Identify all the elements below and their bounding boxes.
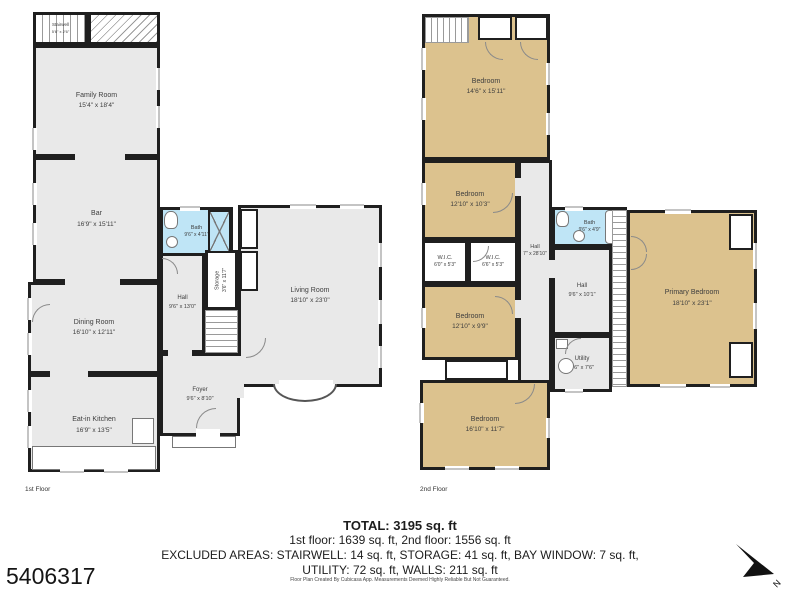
room-label: Primary Bedroom: [665, 288, 719, 299]
closet: [445, 360, 508, 380]
room-dims: 9'6" x 4'11": [184, 232, 208, 240]
first-floor-plan: Stairwell5'6" x 2'6" Family Room15'4" x …: [20, 8, 405, 486]
door-opening: [75, 154, 125, 163]
door-opening: [548, 260, 557, 278]
window-marker: [104, 469, 128, 476]
room-label: Stairwell: [52, 22, 69, 29]
first-floor-label: 1st Floor: [25, 486, 50, 493]
toilet: [556, 211, 569, 227]
window-marker: [419, 48, 426, 70]
room-storage: Storage3'6" x 11'7": [205, 250, 238, 310]
room-wic-left: W.I.C.6'0" x 5'3": [422, 240, 468, 284]
second-floor-plan: Bedroom14'6" x 15'11" Bedroom12'10" x 10…: [415, 8, 795, 486]
excluded-areas-text-line1: EXCLUDED AREAS: STAIRWELL: 14 sq. ft, ST…: [0, 548, 800, 563]
window-marker: [565, 389, 583, 396]
window-marker: [565, 204, 583, 211]
total-area-text: TOTAL: 3195 sq. ft: [0, 518, 800, 533]
room-label: Eat-in Kitchen: [72, 415, 116, 426]
room-label: Bar: [91, 209, 102, 220]
room-label: Family Room: [76, 91, 117, 102]
bay-window: [273, 384, 337, 402]
window-marker: [30, 223, 37, 245]
excluded-areas-text-line2: UTILITY: 72 sq. ft, WALLS: 211 sq. ft: [0, 563, 800, 578]
kitchen-counter: [32, 446, 156, 470]
door-opening: [65, 279, 120, 288]
room-dining-room: Dining Room16'10" x 12'11": [28, 282, 160, 374]
room-label: Bedroom: [471, 415, 499, 426]
window-marker: [180, 204, 200, 211]
room-bedroom-third: Bedroom12'10" x 9'9": [422, 284, 518, 360]
sink: [573, 230, 585, 242]
water-heater: [558, 358, 574, 374]
door-opening: [235, 356, 244, 398]
room-dims: 16'9" x 13'5": [76, 426, 112, 436]
toilet: [164, 211, 178, 229]
room-label: Utility: [575, 355, 590, 364]
room-dims: 12'10" x 10'3": [450, 200, 489, 210]
stairs: [205, 310, 238, 353]
compass-letter: N: [771, 578, 783, 590]
window-marker: [660, 384, 686, 391]
window-marker: [546, 63, 553, 85]
room-dims: 9'6" x 13'0": [169, 303, 196, 311]
room-stairwell: Stairwell5'6" x 2'6": [33, 12, 88, 45]
window-marker: [419, 98, 426, 120]
room-label: Hall: [577, 282, 587, 291]
window-marker: [378, 243, 385, 267]
room-hall-second-floor: Hall9'6" x 10'1": [552, 247, 612, 335]
window-marker: [419, 308, 426, 328]
window-marker: [665, 207, 691, 214]
room-label: Bedroom: [456, 190, 484, 201]
stairs: [612, 210, 627, 387]
window-marker: [340, 202, 364, 209]
room-label: Bath: [191, 224, 202, 232]
window-marker: [30, 128, 37, 150]
compass-arrow: [736, 544, 774, 577]
stairs: [425, 17, 469, 43]
closet: [240, 251, 258, 291]
room-dims: 6'0" x 5'3": [434, 262, 456, 270]
closet: [729, 342, 753, 378]
room-label: Hall: [530, 243, 539, 251]
entry-step: [172, 436, 236, 448]
compass-north-icon: N: [730, 540, 786, 592]
closet: [515, 16, 548, 40]
window-marker: [378, 346, 385, 368]
closet: [729, 214, 753, 250]
room-label: Living Room: [291, 286, 330, 297]
door-opening: [50, 371, 88, 379]
door-opening: [168, 350, 192, 358]
plan-number: 5406317: [6, 563, 96, 590]
second-floor-label: 2nd Floor: [420, 486, 447, 493]
window-marker: [25, 298, 32, 320]
disclaimer-text: Floor Plan Created By Cubicasa App. Meas…: [0, 577, 800, 583]
window-marker: [419, 183, 426, 205]
room-living-room: Living Room18'10" x 23'0": [238, 205, 382, 387]
window-marker: [290, 202, 316, 209]
window-marker: [445, 466, 469, 473]
room-dims: 7" x 28'10": [523, 251, 547, 259]
room-dims: 18'10" x 23'0": [290, 296, 329, 306]
room-label: W.I.C.: [438, 254, 453, 262]
window-marker: [60, 469, 84, 476]
window-marker: [546, 113, 553, 135]
room-label: Foyer: [192, 386, 207, 395]
room-label: Bath: [584, 219, 595, 227]
window-marker: [156, 106, 163, 128]
window-marker: [710, 384, 730, 391]
window-marker: [753, 243, 760, 269]
room-dims: 6'6" x 5'3": [482, 262, 504, 270]
room-label: Storage: [214, 270, 222, 289]
room-label: Hall: [177, 294, 187, 303]
door-opening: [196, 429, 220, 437]
door-opening: [515, 300, 524, 318]
window-marker: [25, 390, 32, 412]
excluded-area-hatch: [88, 12, 160, 45]
room-family-room: Family Room15'4" x 18'4": [33, 45, 160, 157]
room-dims: 15'4" x 18'4": [79, 101, 115, 111]
door-opening: [515, 178, 524, 196]
area-summary: TOTAL: 3195 sq. ft 1st floor: 1639 sq. f…: [0, 518, 800, 578]
room-bar: Bar16'9" x 15'11": [33, 157, 160, 282]
window-marker: [30, 183, 37, 205]
room-dims: 16'9" x 15'11": [77, 220, 116, 230]
closet: [478, 16, 512, 40]
window-marker: [546, 418, 553, 438]
room-dims: 14'6" x 15'11": [467, 87, 506, 97]
room-label: Bedroom: [472, 77, 500, 88]
room-dims: 9'6" x 10'1": [568, 291, 595, 299]
window-marker: [378, 300, 385, 324]
room-dims: 12'10" x 9'9": [452, 322, 488, 332]
room-dims: 16'10" x 12'11": [73, 328, 115, 338]
room-label: W.I.C.: [486, 254, 501, 262]
window-marker: [25, 426, 32, 448]
room-dims: 3'6" x 11'7": [222, 268, 230, 292]
room-dims: 5'6" x 2'6": [52, 29, 70, 35]
shower: [208, 210, 231, 253]
window-marker: [753, 303, 760, 329]
sink: [166, 236, 178, 248]
room-dims: 16'10" x 11'7": [466, 425, 505, 435]
room-label: Bedroom: [456, 312, 484, 323]
room-dims: 9'6" x 8'10": [186, 395, 213, 403]
window-marker: [495, 466, 519, 473]
window-marker: [156, 68, 163, 90]
floor-areas-text: 1st floor: 1639 sq. ft, 2nd floor: 1556 …: [0, 533, 800, 548]
room-label: Dining Room: [74, 318, 114, 329]
room-dims: 18'10" x 23'1": [672, 299, 711, 309]
window-marker: [417, 403, 424, 423]
closet: [240, 209, 258, 249]
stove: [132, 418, 154, 444]
window-marker: [25, 333, 32, 355]
